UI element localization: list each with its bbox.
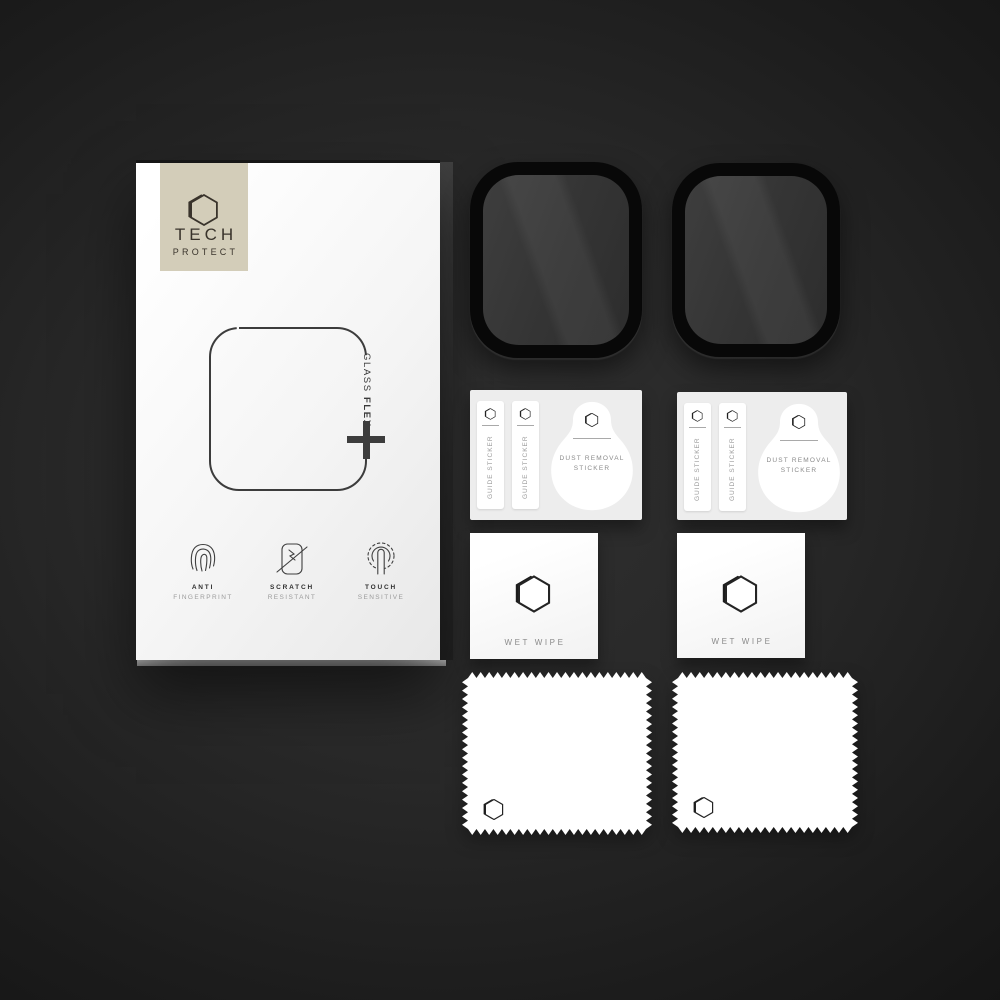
hexagon-logo-icon: [482, 799, 506, 820]
wet-wipe-label: WET WIPE: [677, 637, 805, 646]
guide-sticker: GUIDE STICKER: [477, 401, 504, 509]
guide-sticker-label: GUIDE STICKER: [729, 428, 736, 511]
screen-protector-1: [470, 162, 642, 358]
glass-reflection: [483, 175, 629, 345]
hexagon-logo-icon: [513, 575, 555, 613]
dust-label-line2: STICKER: [542, 464, 642, 474]
divider-line: [573, 438, 611, 439]
sticker-card-2: GUIDE STICKER GUIDE STICKER DUST REMOVAL…: [677, 392, 847, 520]
box-side-face: [440, 162, 453, 660]
brand-subname: PROTECT: [160, 247, 248, 257]
microfiber-cloth-1: [462, 672, 652, 835]
screen-protector-2: [672, 163, 840, 357]
feature-title: ANTI: [162, 584, 244, 591]
hexagon-logo-icon: [484, 408, 497, 420]
scratch-resistant-icon: [275, 541, 309, 577]
protector-glass: [483, 175, 629, 345]
plus-mark: [363, 421, 370, 459]
wet-wipe-packet-1: WET WIPE: [470, 533, 598, 659]
dust-removal-sticker: DUST REMOVAL STICKER: [542, 400, 642, 514]
feature-subtitle: RESISTANT: [251, 594, 333, 601]
dust-label-line1: DUST REMOVAL: [749, 456, 849, 466]
guide-sticker-label: GUIDE STICKER: [487, 426, 494, 509]
sticker-card-1: GUIDE STICKER GUIDE STICKER DUST REMOVAL…: [470, 390, 642, 520]
hexagon-logo-icon: [692, 797, 716, 818]
guide-sticker: GUIDE STICKER: [684, 403, 711, 511]
feature-subtitle: SENSITIVE: [340, 594, 422, 601]
hexagon-logo-icon: [519, 408, 532, 420]
dust-label-line1: DUST REMOVAL: [542, 454, 642, 464]
protector-glass: [685, 176, 827, 344]
hexagon-logo-icon: [691, 410, 704, 422]
hexagon-logo-icon: [726, 410, 739, 422]
hexagon-logo-icon: [791, 415, 807, 429]
dust-sticker-label: DUST REMOVAL STICKER: [542, 454, 642, 474]
touch-sensitive-icon: [363, 541, 399, 577]
feature-subtitle: FINGERPRINT: [162, 594, 244, 601]
feature-row: ANTI FINGERPRINT SCRATCH RESISTANT TOU: [162, 541, 422, 625]
dust-removal-sticker: DUST REMOVAL STICKER: [749, 402, 849, 516]
feature-title: SCRATCH: [251, 584, 333, 591]
feature-touch-sensitive: TOUCH SENSITIVE: [340, 541, 422, 625]
guide-sticker-label: GUIDE STICKER: [694, 428, 701, 511]
techprotect-hexagon-icon: [186, 194, 222, 226]
fingerprint-icon: [188, 541, 218, 577]
feature-anti-fingerprint: ANTI FINGERPRINT: [162, 541, 244, 625]
watch-screen-outline: [208, 326, 368, 492]
retail-box: TECH PROTECT GLASS FLEX ANTI FINGERPRINT: [136, 160, 440, 660]
product-photo-stage: TECH PROTECT GLASS FLEX ANTI FINGERPRINT: [0, 0, 1000, 1000]
box-bottom-face: [137, 660, 446, 666]
brand-name: TECH: [160, 225, 248, 245]
wet-wipe-packet-2: WET WIPE: [677, 533, 805, 658]
hexagon-logo-icon: [720, 575, 762, 613]
dust-label-line2: STICKER: [749, 466, 849, 476]
feature-scratch-resistant: SCRATCH RESISTANT: [251, 541, 333, 625]
product-name-vertical: GLASS FLEX: [356, 353, 377, 431]
wet-wipe-label: WET WIPE: [470, 638, 598, 647]
brand-logo-plate: TECH PROTECT: [160, 163, 248, 271]
microfiber-cloth-2: [672, 672, 858, 833]
glass-reflection: [685, 176, 827, 344]
product-word-glass: GLASS: [361, 353, 372, 393]
dust-sticker-label: DUST REMOVAL STICKER: [749, 456, 849, 476]
hexagon-logo-icon: [584, 413, 600, 427]
guide-sticker-label: GUIDE STICKER: [522, 426, 529, 509]
divider-line: [780, 440, 818, 441]
guide-sticker: GUIDE STICKER: [719, 403, 746, 511]
feature-title: TOUCH: [340, 584, 422, 591]
guide-sticker: GUIDE STICKER: [512, 401, 539, 509]
